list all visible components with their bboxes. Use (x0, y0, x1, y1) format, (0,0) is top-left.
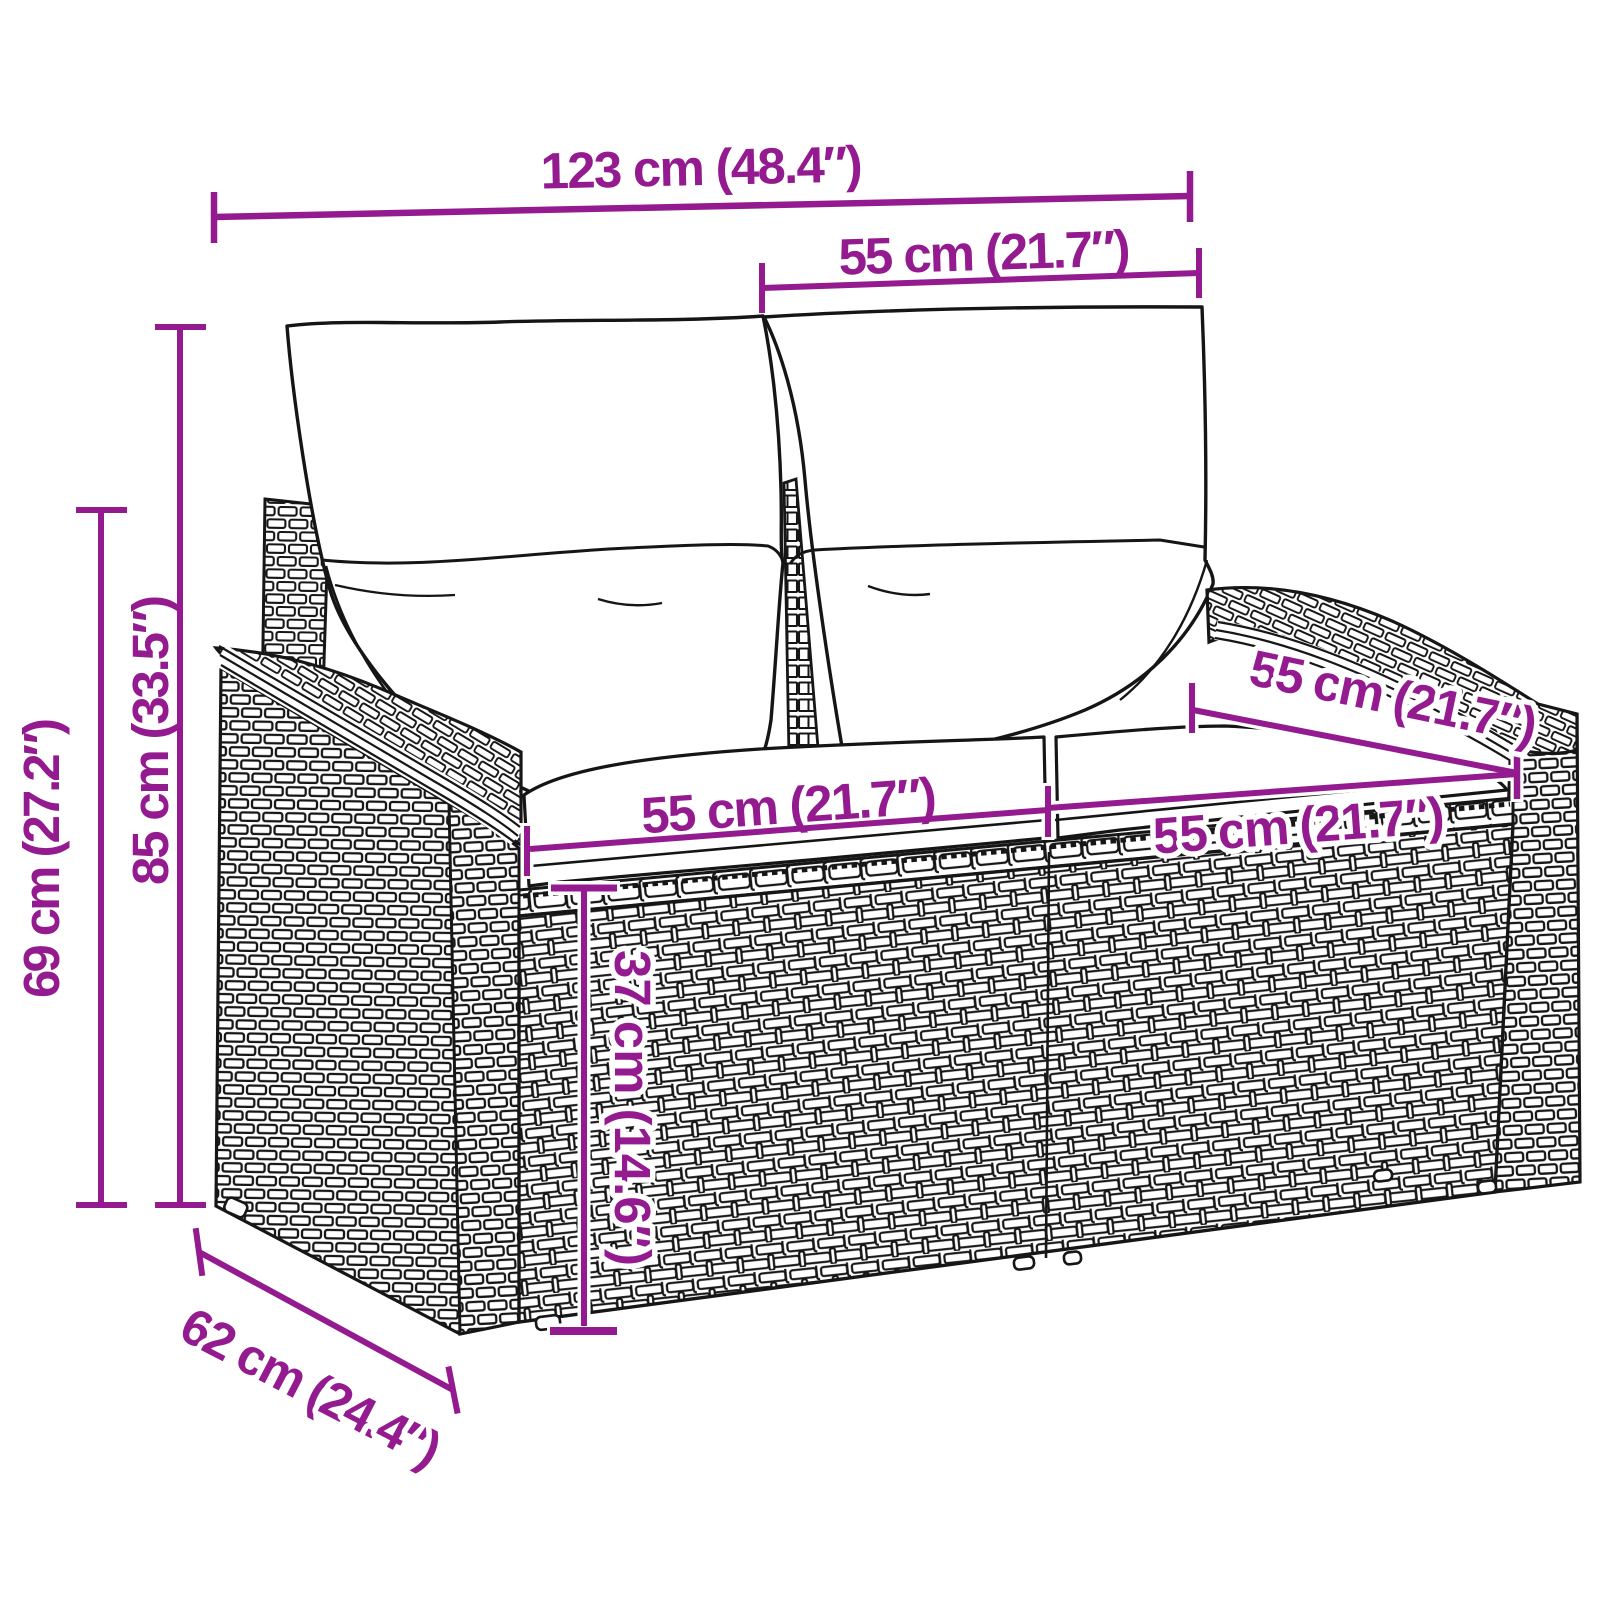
svg-text:69 cm (27.2″): 69 cm (27.2″) (13, 718, 70, 998)
svg-text:123 cm (48.4″): 123 cm (48.4″) (540, 135, 863, 199)
svg-text:37 cm (14.6″): 37 cm (14.6″) (604, 950, 661, 1266)
svg-text:85 cm (33.5″): 85 cm (33.5″) (122, 595, 179, 885)
svg-text:55 cm (21.7″): 55 cm (21.7″) (838, 219, 1132, 285)
